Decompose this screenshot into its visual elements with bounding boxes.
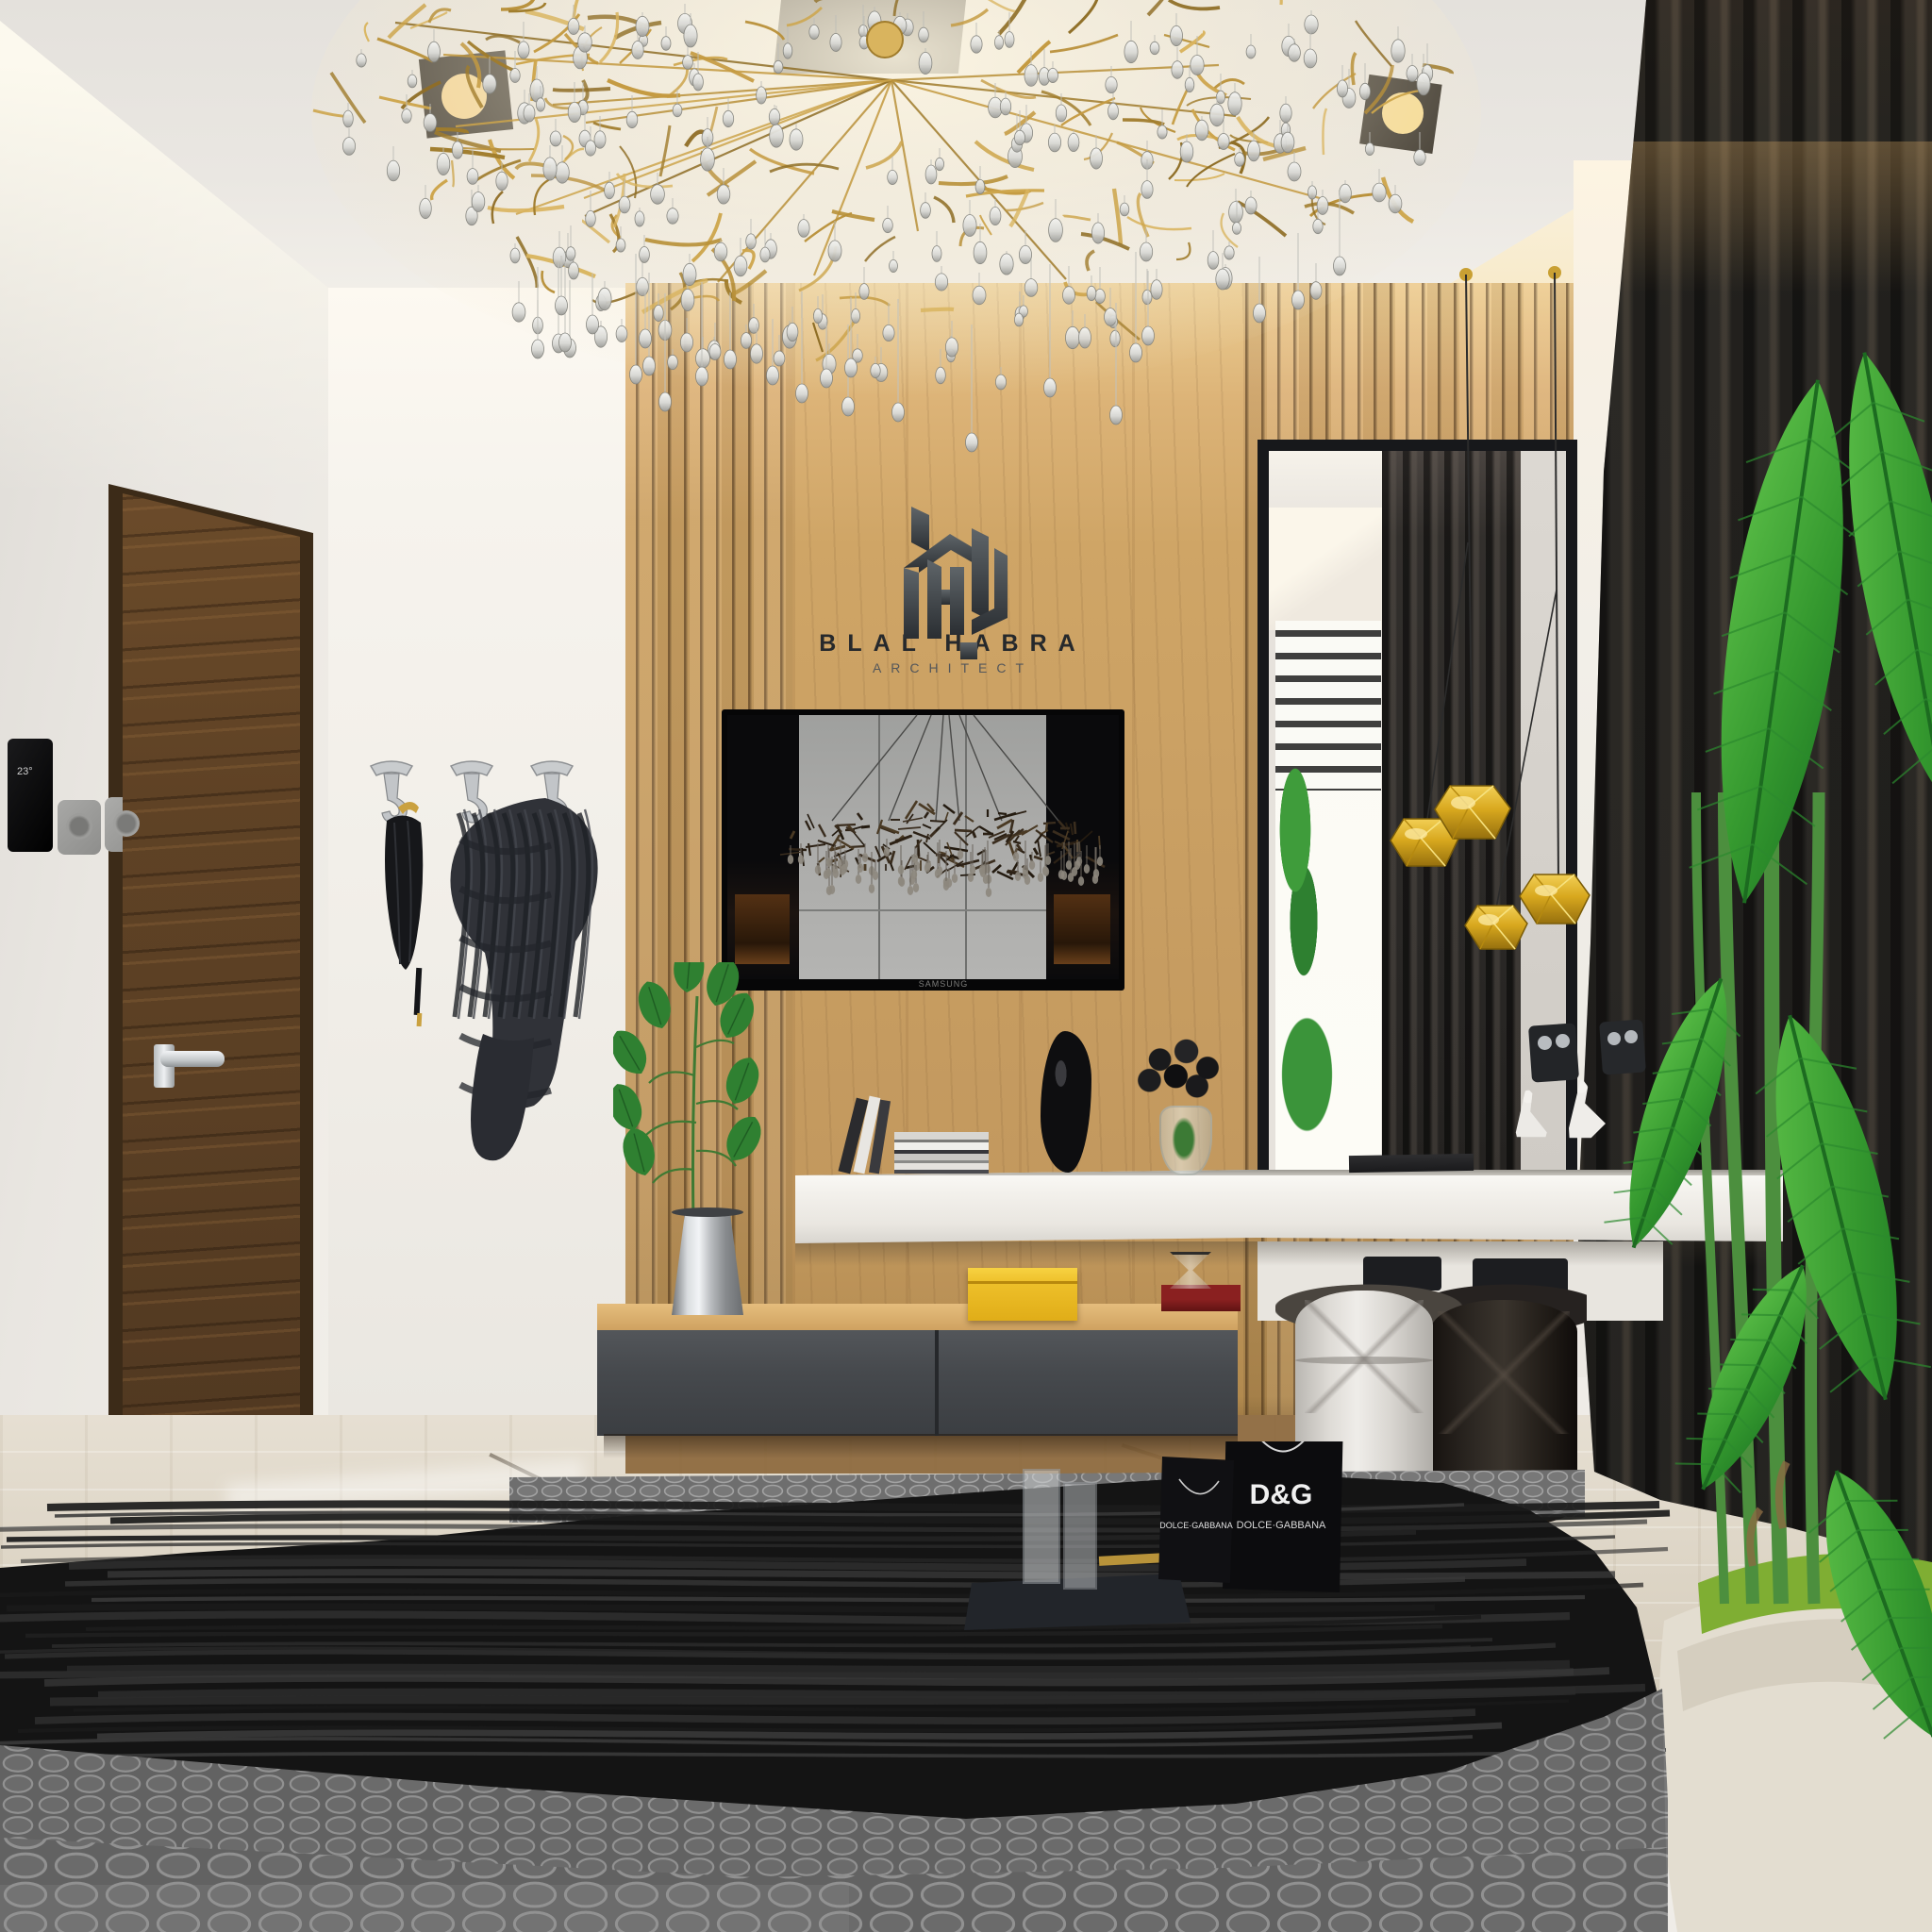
svg-text:D&G: D&G — [1250, 1479, 1313, 1510]
svg-text:DOLCE·GABBANA: DOLCE·GABBANA — [1159, 1521, 1233, 1530]
svg-text:DOLCE·GABBANA: DOLCE·GABBANA — [1237, 1520, 1326, 1531]
